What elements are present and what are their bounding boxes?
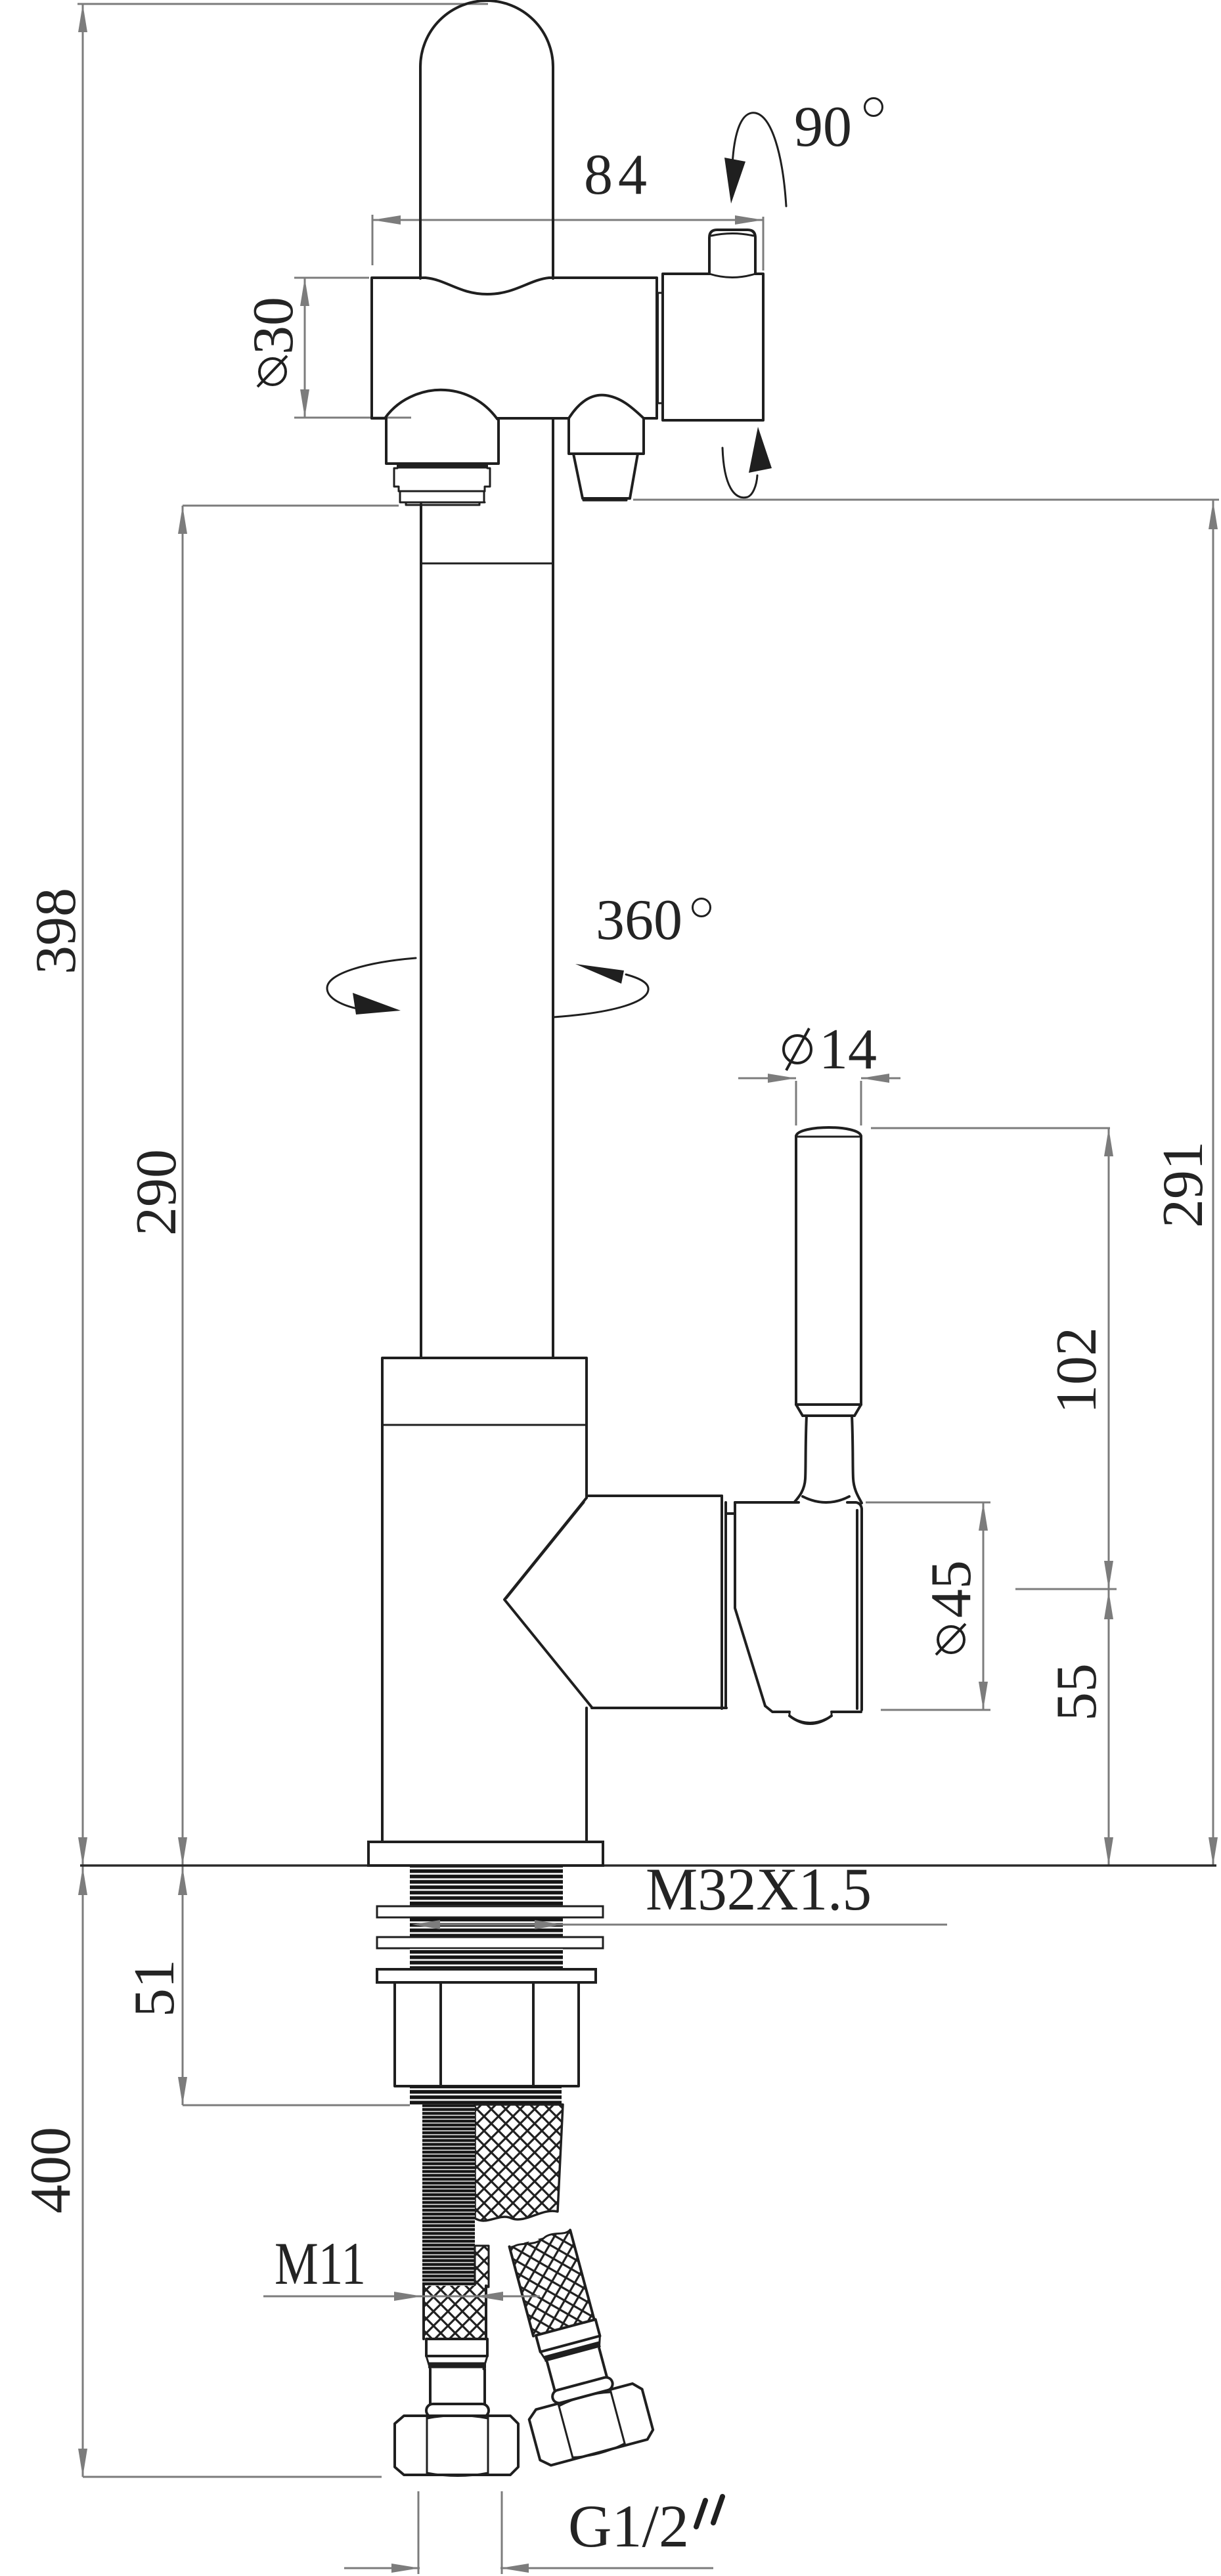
svg-text:45: 45	[920, 1560, 983, 1618]
svg-text:90: 90	[794, 95, 852, 159]
svg-text:M32X1.5: M32X1.5	[646, 1856, 872, 1923]
svg-text:398: 398	[24, 888, 88, 974]
svg-text:M11: M11	[275, 2230, 366, 2297]
svg-text:30: 30	[242, 297, 305, 355]
svg-text:400: 400	[19, 2127, 83, 2214]
svg-text:G1/2: G1/2	[568, 2493, 689, 2560]
svg-text:360: 360	[596, 888, 682, 952]
svg-text:291: 291	[1151, 1141, 1215, 1228]
svg-text:102: 102	[1045, 1327, 1109, 1414]
svg-text:55: 55	[1045, 1663, 1109, 1721]
svg-text:290: 290	[125, 1149, 189, 1236]
svg-text:51: 51	[123, 1959, 187, 2017]
svg-text:84: 84	[584, 143, 652, 207]
svg-text:14: 14	[819, 1018, 877, 1081]
